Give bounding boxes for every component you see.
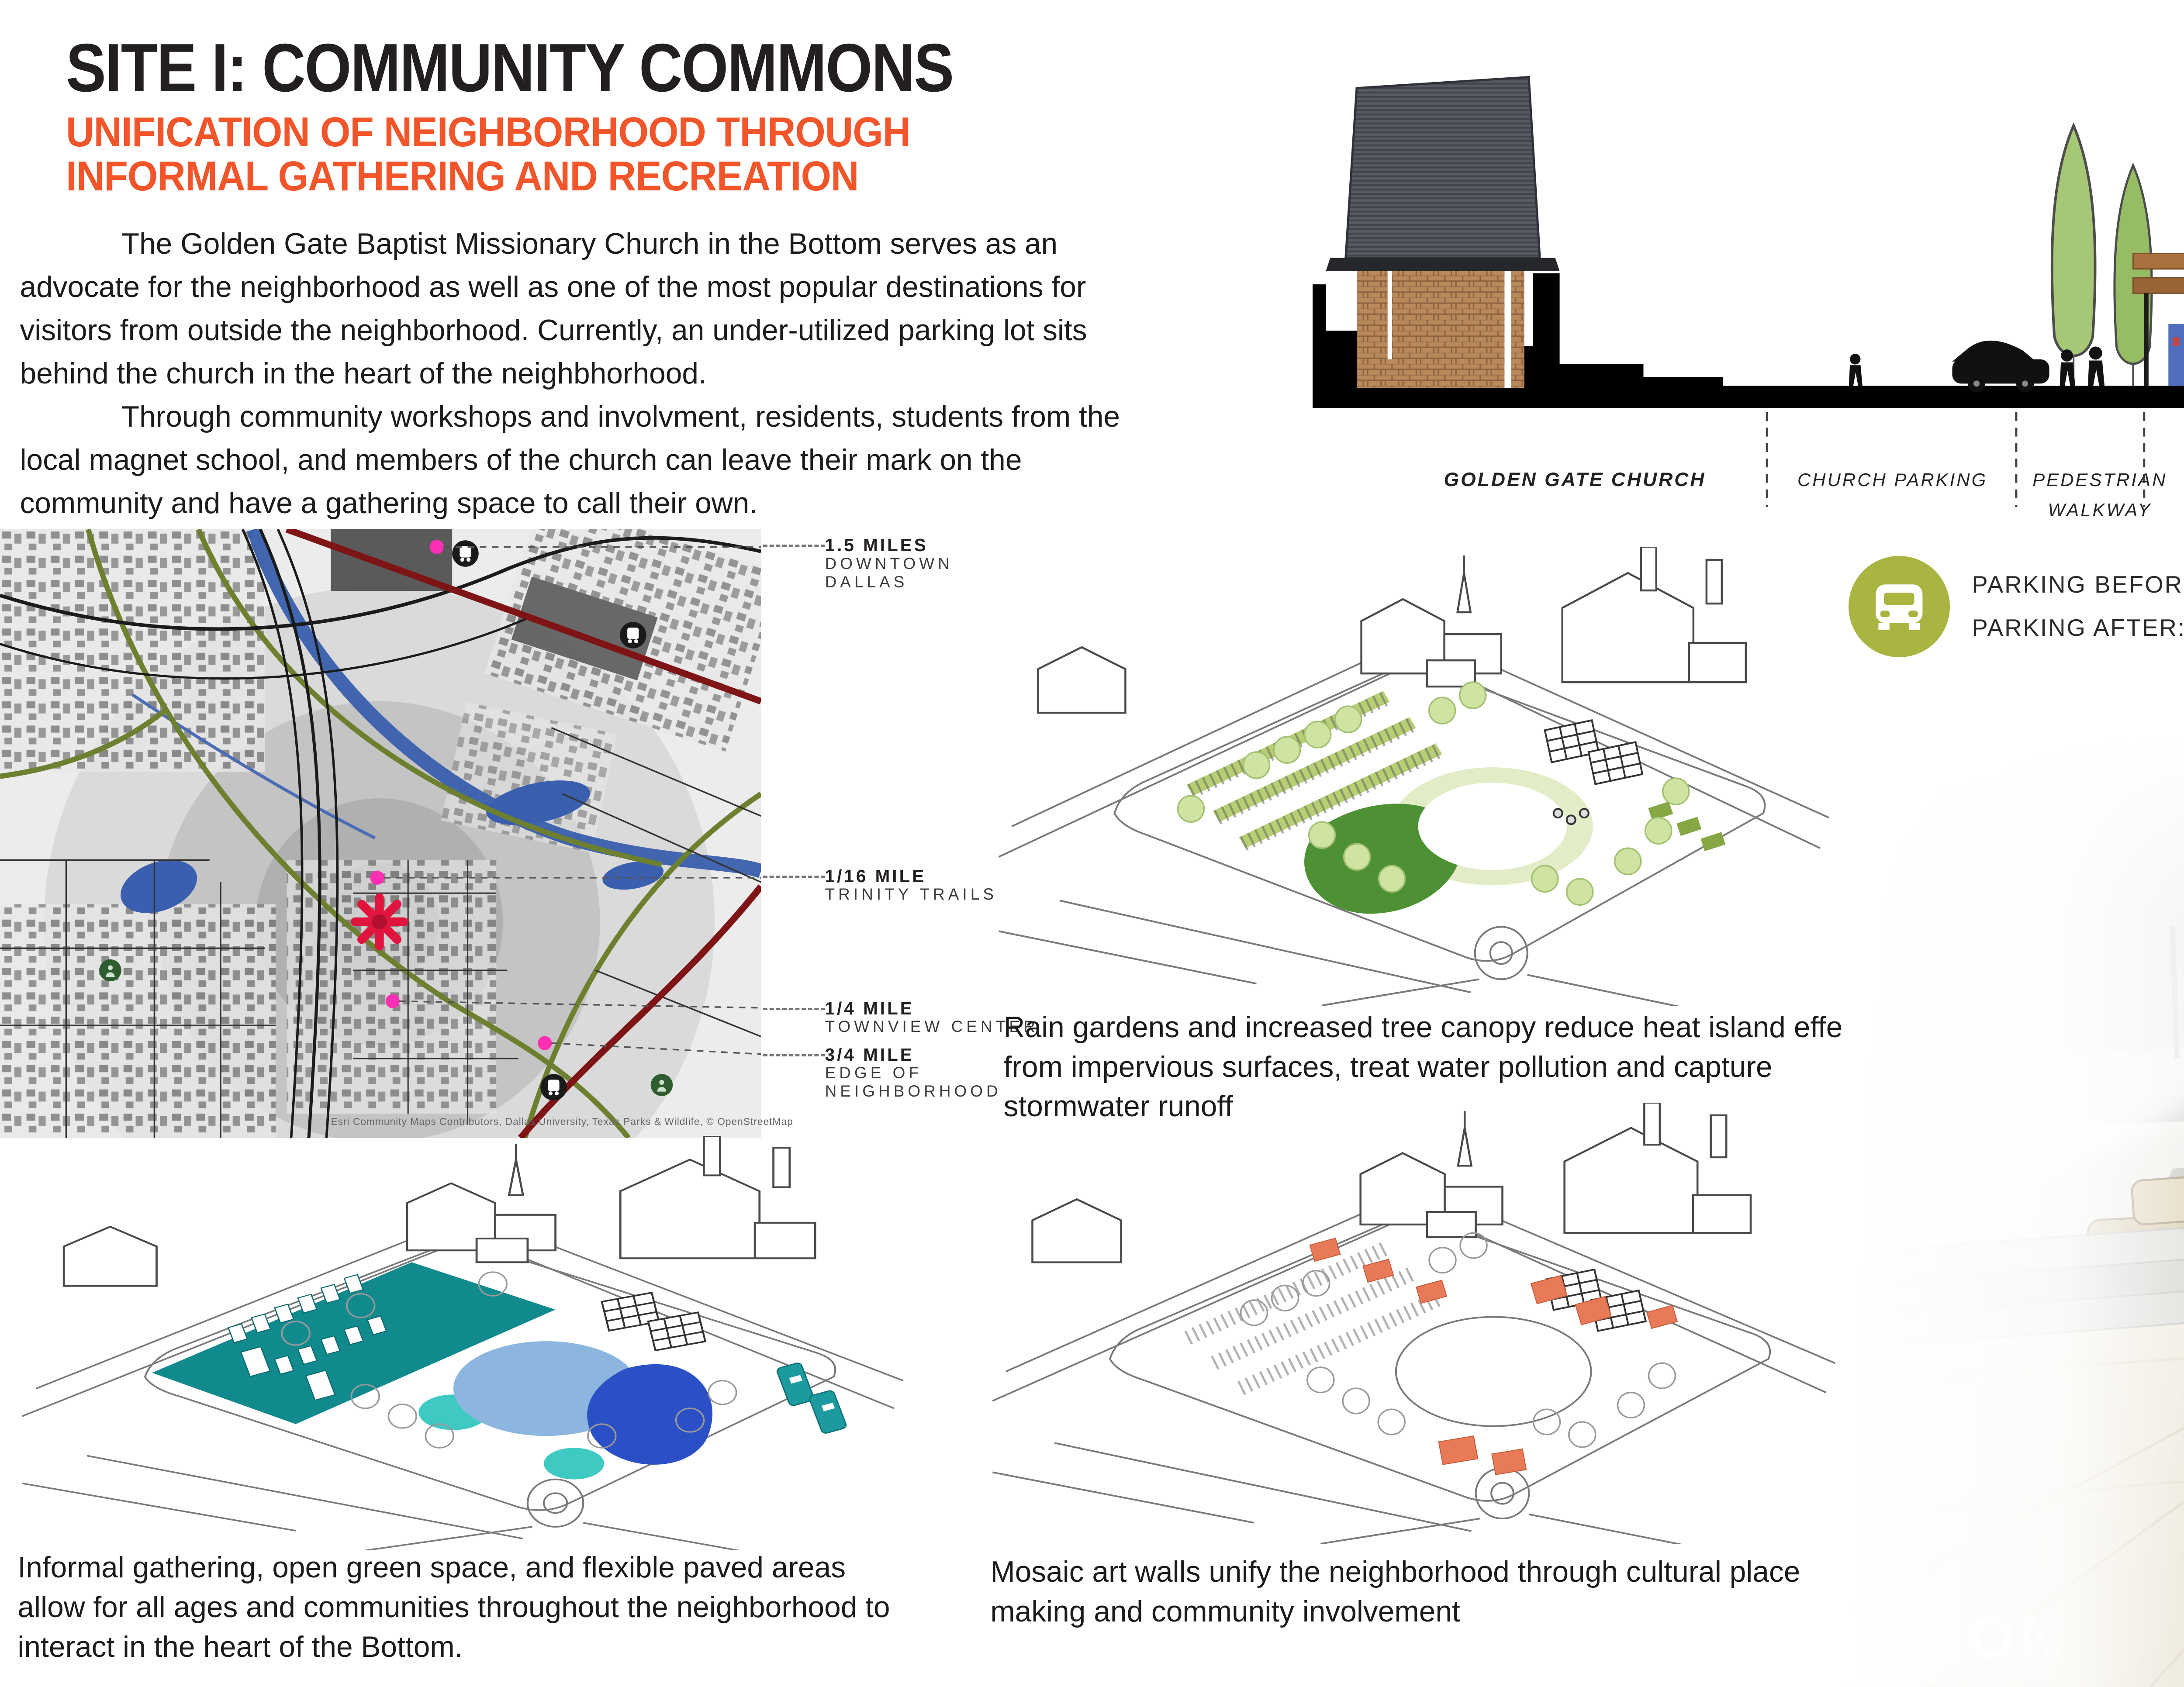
stat-parking-line2: PARKING AFTER: 66 SPACES bbox=[1972, 607, 2184, 649]
subtitle-line-2: INFORMAL GATHERING AND RECREATION bbox=[66, 154, 910, 198]
axon-mosaic-walls bbox=[988, 1103, 1852, 1544]
presentation-board: SITE I: COMMUNITY COMMONS UNIFICATION OF… bbox=[0, 0, 2184, 1687]
leader-line bbox=[763, 1054, 825, 1056]
context-map bbox=[0, 529, 761, 1138]
map-marker-edge-of-neighborhood: 3/4 MILE EDGE OF NEIGHBORHOOD bbox=[825, 1045, 1002, 1101]
axon-a-canopies bbox=[1545, 721, 1642, 825]
caption-informal-gathering: Informal gathering, open green space, an… bbox=[17, 1548, 904, 1667]
page-subtitle: UNIFICATION OF NEIGHBORHOOD THROUGH INFO… bbox=[66, 110, 910, 198]
axon-rain-gardens bbox=[992, 547, 1848, 1005]
car-icon bbox=[1849, 556, 1950, 657]
leader-line bbox=[763, 876, 825, 878]
section-label-golden-gate-church: GOLDEN GATE CHURCH bbox=[1444, 465, 1706, 495]
render-haze bbox=[1842, 728, 2184, 1169]
render-watermark: UMION bbox=[1846, 1604, 2067, 1671]
axon-c-church-buildings bbox=[1033, 1103, 1751, 1263]
axon-informal-gathering bbox=[17, 1136, 922, 1550]
map-site-star bbox=[355, 897, 404, 946]
intro-paragraph-1: The Golden Gate Baptist Missionary Churc… bbox=[20, 223, 1162, 396]
leader-line bbox=[763, 1008, 825, 1010]
map-marker-trinity-trails: 1/16 MILE TRINITY TRAILS bbox=[825, 867, 997, 904]
section-ground bbox=[1723, 386, 2184, 438]
axon-c-parking bbox=[1188, 1248, 1441, 1388]
site-section-illustration bbox=[1313, 55, 2184, 518]
section-parked-car bbox=[1952, 341, 2049, 393]
intro-text: The Golden Gate Baptist Missionary Churc… bbox=[20, 223, 1162, 525]
caption-mosaic-walls: Mosaic art walls unify the neighborhood … bbox=[990, 1552, 1868, 1632]
page-title: SITE I: COMMUNITY COMMONS bbox=[66, 29, 953, 107]
axon-b-canopies bbox=[602, 1293, 705, 1350]
intro-paragraph-2: Through community workshops and involvme… bbox=[20, 396, 1162, 525]
map-attribution: Esri Community Maps Contributors, Dallas… bbox=[331, 1116, 793, 1128]
stat-parking-line1: PARKING BEFORE: 118 SPACES bbox=[1972, 563, 2184, 606]
axon-c-mosaic-panels bbox=[1310, 1238, 1677, 1475]
perspective-render: UMION bbox=[1842, 728, 2184, 1687]
stat-parking: PARKING BEFORE: 118 SPACES PARKING AFTER… bbox=[1849, 556, 2184, 657]
axon-c-trees bbox=[1241, 1233, 1676, 1447]
section-church bbox=[1313, 77, 1723, 408]
subtitle-line-1: UNIFICATION OF NEIGHBORHOOD THROUGH bbox=[66, 110, 910, 154]
axon-b-church-buildings bbox=[64, 1136, 816, 1286]
axon-a-church-buildings bbox=[1038, 547, 1746, 713]
section-label-church-parking: CHURCH PARKING bbox=[1797, 465, 1987, 495]
section-label-pedestrian-walkway: PEDESTRIAN WALKWAY bbox=[2032, 465, 2167, 524]
axon-c-plaza bbox=[1396, 1317, 1591, 1426]
leader-line bbox=[763, 545, 825, 547]
map-marker-downtown-dallas: 1.5 MILES DOWNTOWN DALLAS bbox=[825, 536, 953, 591]
